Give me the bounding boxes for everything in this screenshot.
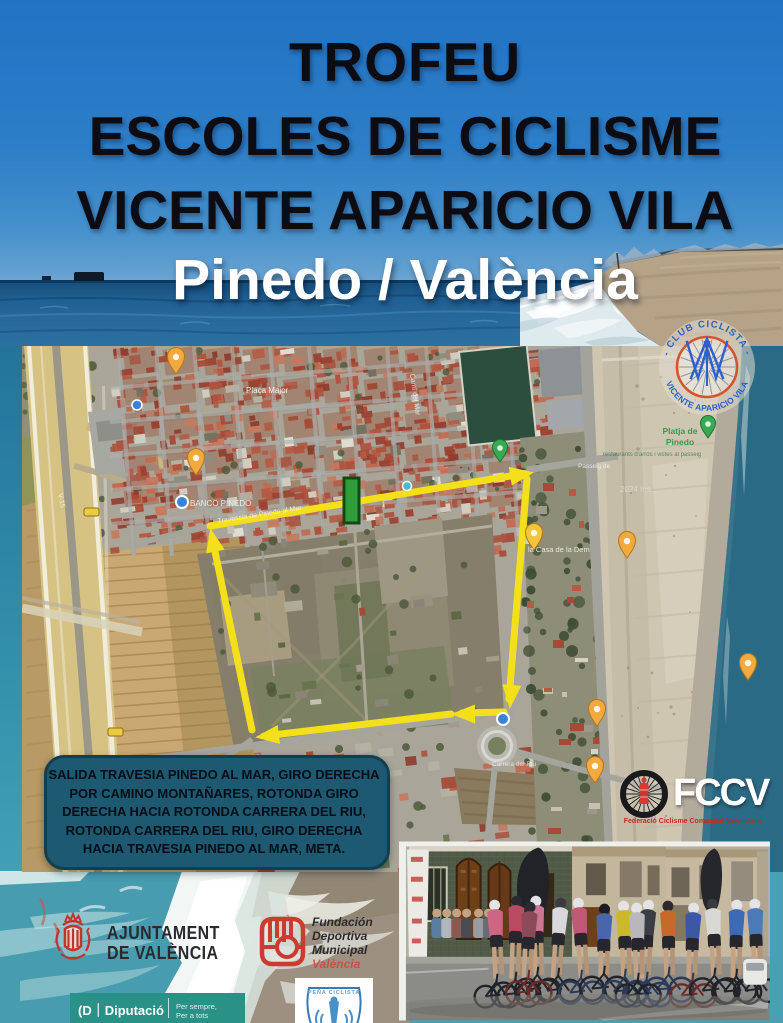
svg-text:Carrera del Riu: Carrera del Riu (492, 761, 536, 768)
svg-text:Plaça Major: Plaça Major (246, 386, 289, 395)
svg-text:PEÑA CICLISTA: PEÑA CICLISTA (308, 989, 360, 996)
svg-text:restaurants d'arròs i vistes a: restaurants d'arròs i vistes al passeig (603, 452, 702, 458)
svg-text:Pinedo: Pinedo (666, 437, 694, 447)
svg-text:Platja de: Platja de (663, 426, 698, 436)
svg-text:2024 Ins...: 2024 Ins... (620, 485, 657, 494)
svg-text:BANCO PINEDO: BANCO PINEDO (190, 499, 251, 508)
svg-text:Passeig de: Passeig de (578, 463, 611, 470)
svg-text:la Casa de la Dem: la Casa de la Dem (528, 545, 590, 554)
